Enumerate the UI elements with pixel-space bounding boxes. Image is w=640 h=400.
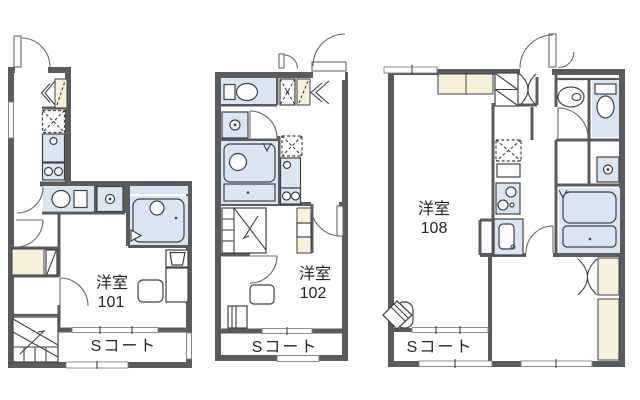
bath-ledge — [130, 186, 188, 194]
toilet-icon — [595, 84, 616, 118]
refrigerator-space-icon — [43, 111, 65, 133]
balcony-label: Sコート — [252, 339, 319, 356]
kitchen-cabinet — [497, 164, 520, 177]
stove-icon — [496, 183, 520, 214]
entrance-door-icon — [520, 34, 574, 68]
floorplan-canvas: 洋室 101 Sコート — [0, 0, 640, 400]
entrance-door-icon — [312, 34, 346, 71]
stairs-icon — [222, 208, 266, 253]
closet — [12, 249, 44, 275]
bathtub-icon — [559, 190, 616, 247]
floorplans-svg: 洋室 101 Sコート — [0, 0, 640, 400]
kitchen-sink-icon — [281, 158, 301, 188]
table-icon — [138, 280, 163, 302]
room-label: 洋室 — [96, 274, 128, 292]
entrance-opening — [520, 66, 552, 77]
balcony-label: Sコート — [407, 339, 474, 356]
desk-icon — [166, 250, 188, 302]
service-door-icon — [279, 54, 298, 69]
unit-number: 101 — [98, 294, 125, 311]
desk-icon — [228, 306, 247, 328]
stairs-icon — [13, 317, 58, 362]
closet — [438, 74, 493, 94]
floorplan-unit-102: 洋室 102 Sコート — [218, 34, 346, 362]
toilet-icon — [224, 84, 258, 101]
balcony-label: Sコート — [91, 338, 158, 355]
bathtub-icon — [224, 143, 275, 201]
stove-icon — [281, 188, 301, 204]
shoe-cabinet-icon — [495, 73, 518, 106]
entrance-door-icon — [14, 36, 50, 67]
room-label: 洋室 — [418, 200, 450, 218]
washer-icon — [97, 187, 123, 212]
washbasin-icon — [558, 87, 584, 107]
unit-number: 108 — [421, 220, 448, 237]
washbasin-icon — [222, 112, 248, 138]
refrigerator-space-icon — [282, 136, 302, 156]
bathtub-icon — [131, 199, 184, 242]
refrigerator-space-icon — [496, 140, 521, 161]
floorplan-unit-101: 洋室 101 Sコート — [9, 36, 192, 369]
stove-icon — [43, 163, 65, 180]
table-icon — [383, 301, 413, 329]
table-icon — [250, 285, 274, 304]
room-label: 洋室 — [299, 265, 331, 283]
closet — [297, 208, 311, 253]
washer-icon — [280, 79, 295, 105]
washer-icon — [597, 157, 619, 182]
closet-door — [46, 250, 57, 275]
unit-number: 102 — [300, 285, 327, 302]
floorplan-unit-108: 洋室 108 Sコート — [383, 34, 622, 368]
kitchen-sink-icon — [494, 219, 523, 255]
kitchen-sink-icon — [43, 134, 65, 162]
